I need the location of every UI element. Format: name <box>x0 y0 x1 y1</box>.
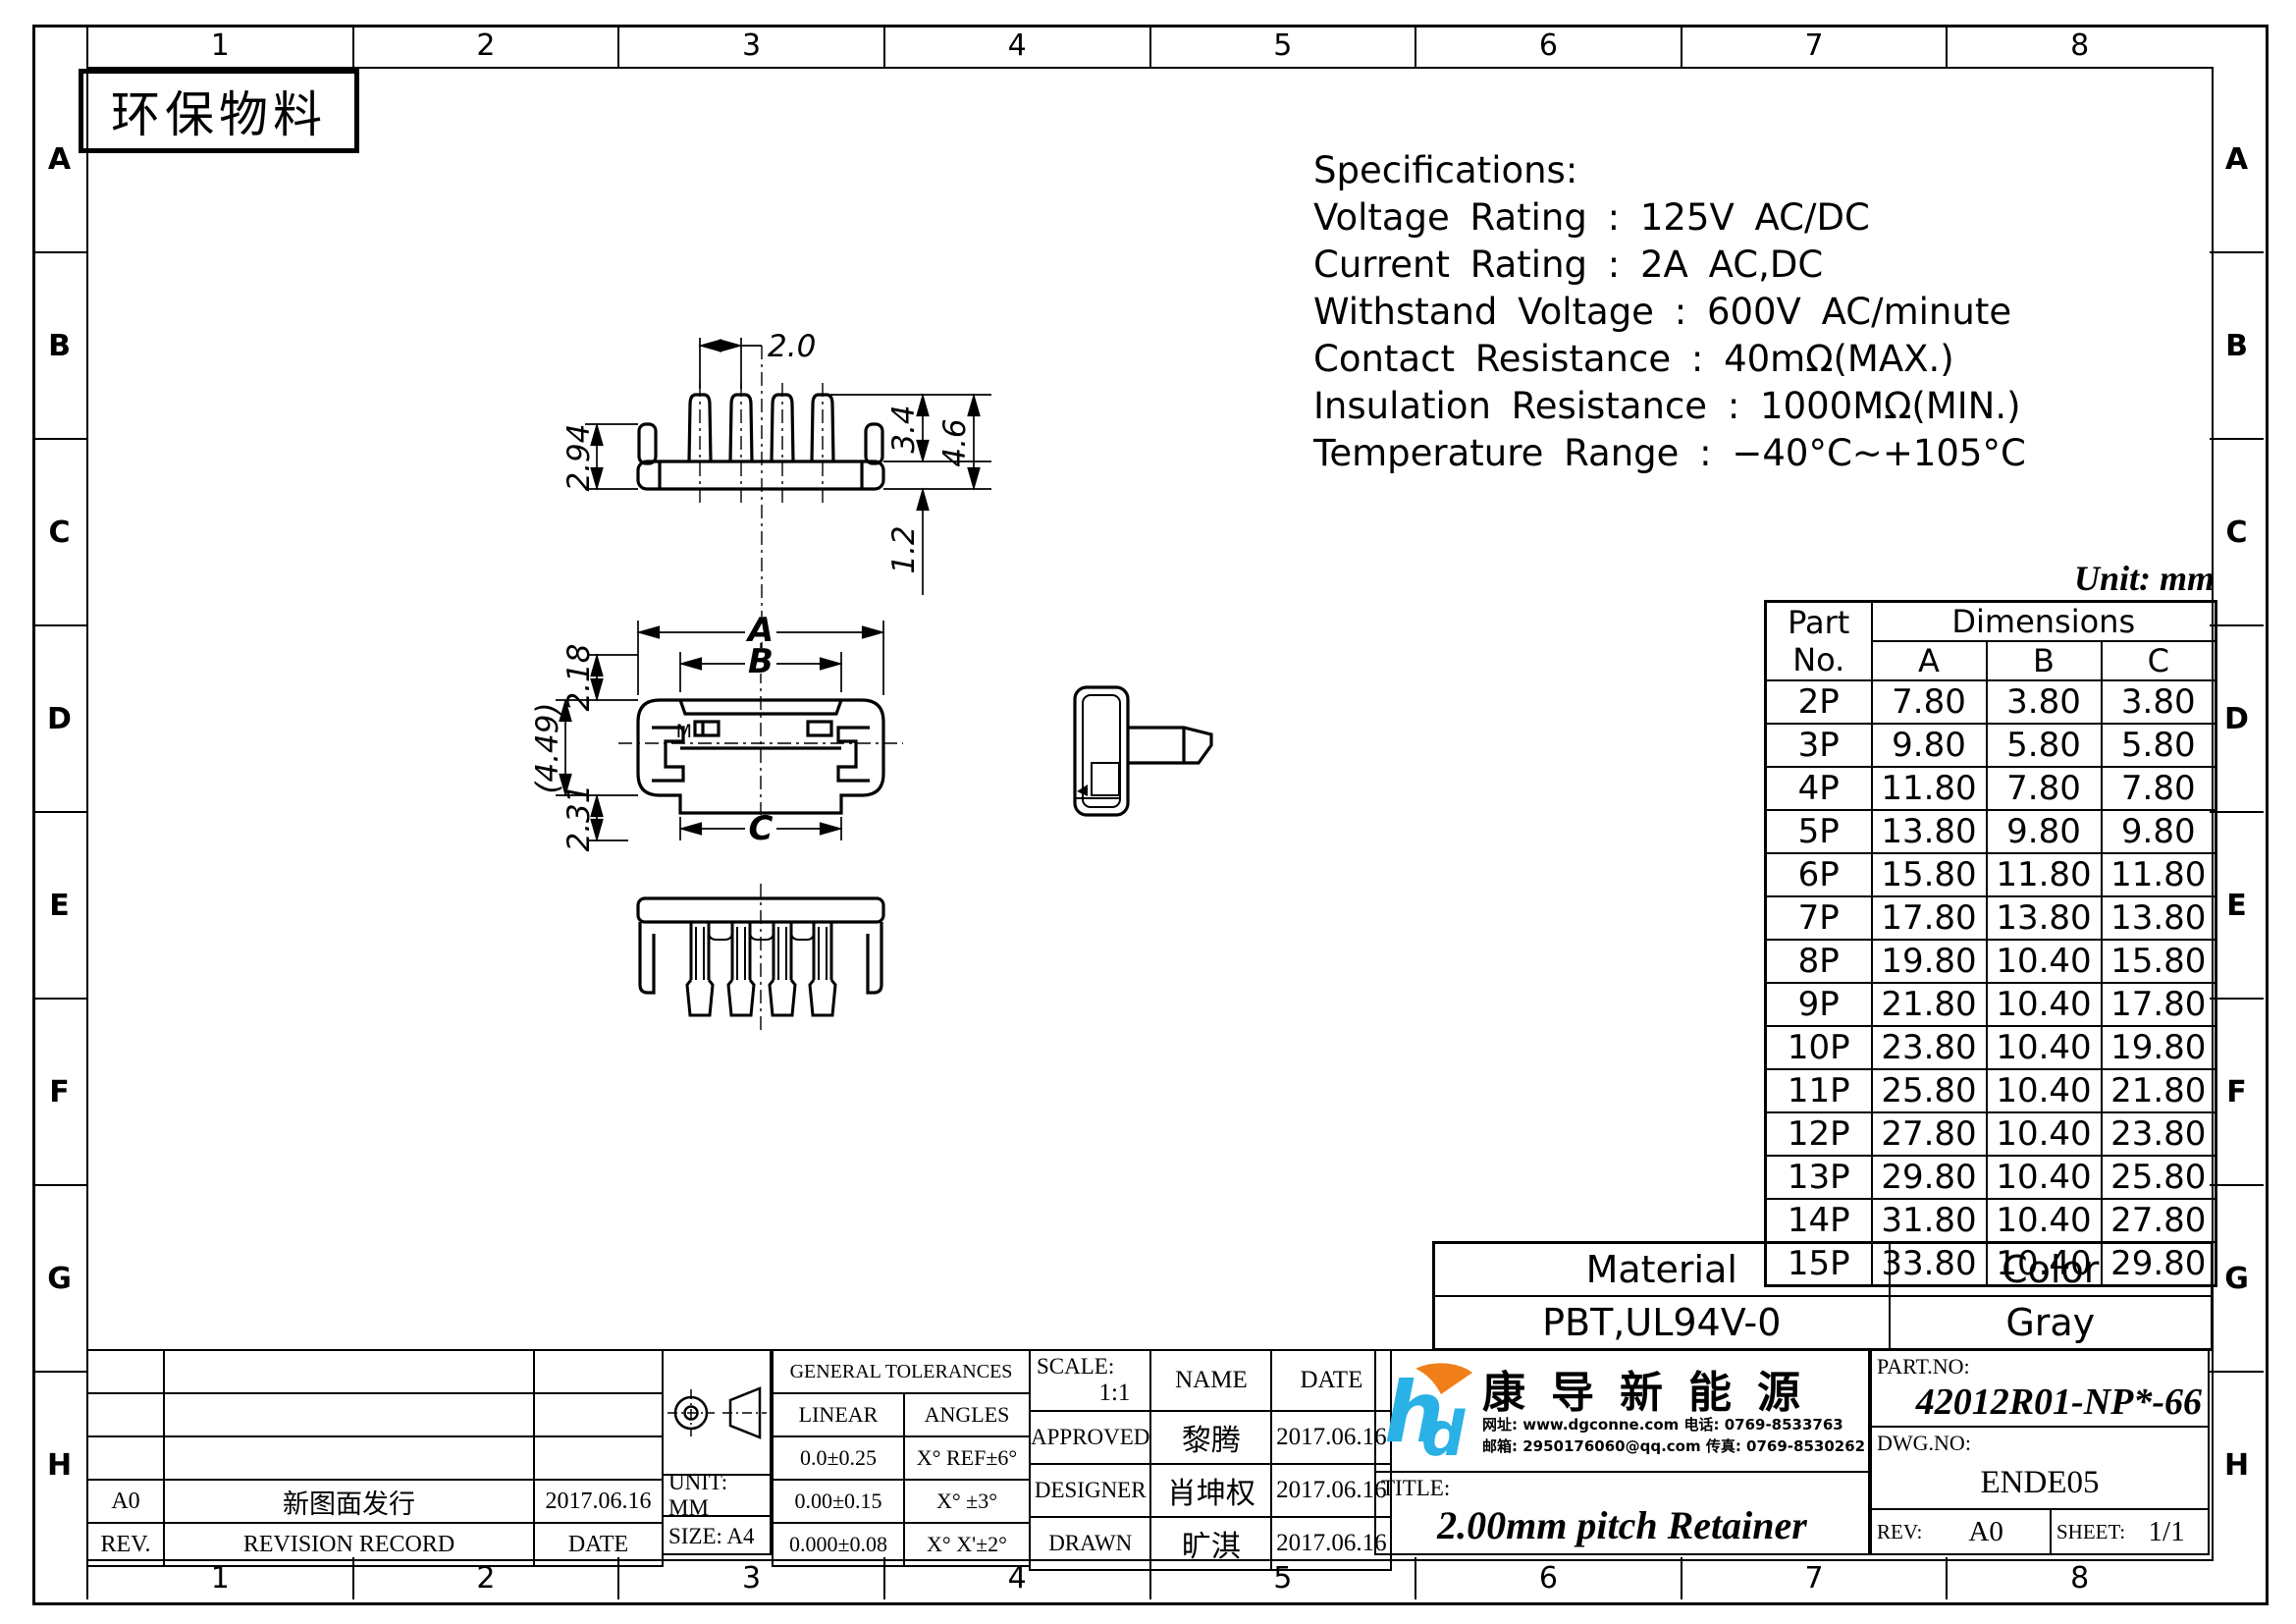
dim-12: 1.2 <box>886 525 922 573</box>
dim-a-cell: 13.80 <box>1872 810 1987 853</box>
dim-a-cell: 31.80 <box>1872 1199 1987 1242</box>
specification-line: Voltage Rating : 125V AC/DC <box>1313 194 2026 242</box>
dim-b-cell: 10.40 <box>1987 1026 2102 1069</box>
part-no-cell: 14P <box>1766 1199 1872 1242</box>
zone-row-label: E <box>2210 813 2264 1000</box>
zone-column-label: 2 <box>354 25 620 67</box>
zone-column-label: 7 <box>1682 1557 1949 1599</box>
dim-b-cell: 10.40 <box>1987 1199 2102 1242</box>
approval-table: SCALE: 1:1 NAME DATE APPROVED 黎腾 2017.06… <box>1029 1349 1392 1571</box>
zone-column-label: 6 <box>1416 1557 1682 1599</box>
zone-row-label: G <box>32 1186 86 1373</box>
title-area: TITLE: 2.00mm pitch Retainer <box>1376 1473 1868 1555</box>
approval-row: DESIGNER 肖坤权 2017.06.16 <box>1030 1464 1391 1517</box>
front-view: 2.0 2.94 3.4 4.6 1.2 <box>561 329 991 653</box>
scale-label: SCALE: <box>1037 1354 1114 1380</box>
dim-c-cell: 13.80 <box>2102 896 2216 940</box>
unit-note: Unit: mm <box>1920 558 2215 599</box>
name-header: NAME <box>1150 1350 1271 1411</box>
dimensions-table-row: 8P 19.80 10.40 15.80 <box>1766 940 2216 983</box>
dim-46: 4.6 <box>937 418 973 466</box>
revision-record: 新图面发行 <box>164 1480 534 1523</box>
scale-cell: SCALE: 1:1 <box>1030 1350 1150 1411</box>
bottom-view <box>638 884 883 1031</box>
dimensions-table-row: 11P 25.80 10.40 21.80 <box>1766 1069 2216 1112</box>
revision-rev: A0 <box>87 1480 164 1523</box>
dim-34: 3.4 <box>886 405 922 453</box>
revision-date: 2017.06.16 <box>534 1480 663 1523</box>
zone-column-label: 1 <box>88 25 354 67</box>
zone-row-label: D <box>32 626 86 813</box>
revision-row: A0 新图面发行 2017.06.16 <box>87 1480 663 1523</box>
dim-c-cell: 3.80 <box>2102 680 2216 724</box>
dim-c-cell: 9.80 <box>2102 810 2216 853</box>
dimensions-table-row: 3P 9.80 5.80 5.80 <box>1766 724 2216 767</box>
approval-role: DRAWN <box>1030 1517 1150 1570</box>
svg-text:d: d <box>1421 1398 1466 1465</box>
part-no-cell: 13P <box>1766 1156 1872 1199</box>
zone-row-label: F <box>2210 1000 2264 1186</box>
dimensions-table-row: 10P 23.80 10.40 19.80 <box>1766 1026 2216 1069</box>
angles-label: ANGLES <box>904 1393 1030 1436</box>
part-no-cell: 10P <box>1766 1026 1872 1069</box>
rev-label: REV: <box>1872 1520 1922 1544</box>
part-views-drawing: 2.0 2.94 3.4 4.6 1.2 <box>530 236 1276 1100</box>
dim-a-cell: 29.80 <box>1872 1156 1987 1199</box>
dim-b-cell: 3.80 <box>1987 680 2102 724</box>
zone-row-label: G <box>2210 1186 2264 1373</box>
dim-a-cell: 23.80 <box>1872 1026 1987 1069</box>
projection-symbol-icon <box>666 1371 768 1455</box>
revision-record-label: REVISION RECORD <box>164 1523 534 1566</box>
part-no-cell: 11P <box>1766 1069 1872 1112</box>
tolerance-angle: X° ±3° <box>904 1480 1030 1523</box>
zone-column-label: 7 <box>1682 25 1949 67</box>
dimensions-table-row: 6P 15.80 11.80 11.80 <box>1766 853 2216 896</box>
tolerance-row: 0.0±0.25 X° REF±6° <box>773 1436 1030 1480</box>
specification-line: Contact Resistance : 40mΩ(MAX.) <box>1313 336 2026 383</box>
dim-c-cell: 7.80 <box>2102 767 2216 810</box>
dim-b-cell: 10.40 <box>1987 1156 2102 1199</box>
zone-row-label: B <box>2210 253 2264 440</box>
zone-row-label: E <box>32 813 86 1000</box>
dim-b-cell: 10.40 <box>1987 1112 2102 1156</box>
part-no-section: PART.NO: 42012R01-NP*-66 <box>1872 1351 2208 1428</box>
unit-cell: UNIT: MM <box>664 1476 770 1517</box>
dim-a-cell: 7.80 <box>1872 680 1987 724</box>
dim-c: C <box>749 809 774 848</box>
engineering-drawing-sheet: 12345678 12345678 ABCDEFGH ABCDEFGH 环保物料… <box>0 0 2296 1624</box>
tolerances-table: GENERAL TOLERANCES LINEAR ANGLES 0.0±0.2… <box>772 1349 1031 1567</box>
dimensions-table-column-header: B <box>1987 641 2102 680</box>
zone-row-label: B <box>32 253 86 440</box>
sheet-value: 1/1 <box>2149 1516 2185 1548</box>
dim-b-cell: 10.40 <box>1987 1069 2102 1112</box>
tolerance-row: 0.000±0.08 X° X'±2° <box>773 1523 1030 1566</box>
dim-c-cell: 23.80 <box>2102 1112 2216 1156</box>
approval-name: 旷淇 <box>1150 1517 1271 1570</box>
revision-header-row: REV. REVISION RECORD DATE <box>87 1523 663 1566</box>
tolerance-row: 0.00±0.15 X° ±3° <box>773 1480 1030 1523</box>
dimensions-table-row: 5P 13.80 9.80 9.80 <box>1766 810 2216 853</box>
tolerance-linear: 0.0±0.25 <box>773 1436 904 1480</box>
dim-a-cell: 11.80 <box>1872 767 1987 810</box>
zone-row-label: C <box>2210 440 2264 626</box>
zone-column-label: 3 <box>619 25 885 67</box>
part-no-cell: 4P <box>1766 767 1872 810</box>
zone-row-label: D <box>2210 626 2264 813</box>
part-no-label: PART.NO: <box>1877 1354 1970 1380</box>
dim-b-cell: 9.80 <box>1987 810 2102 853</box>
top-view: A B C 2.18 (4.49) 2.31 M <box>530 611 903 852</box>
dim-b: B <box>748 642 774 681</box>
material-value: PBT,UL94V-0 <box>1434 1296 1890 1350</box>
approval-role: APPROVED <box>1030 1411 1150 1464</box>
dimensions-table-row: 9P 21.80 10.40 17.80 <box>1766 983 2216 1026</box>
dwg-no-label: DWG.NO: <box>1877 1431 1971 1456</box>
dim-b-cell: 10.40 <box>1987 940 2102 983</box>
dim-231: 2.31 <box>561 784 597 851</box>
dimensions-table-row: 14P 31.80 10.40 27.80 <box>1766 1199 2216 1242</box>
sheet-label: SHEET: <box>2052 1520 2125 1544</box>
specification-line: Current Rating : 2A AC,DC <box>1313 242 2026 289</box>
dim-218: 2.18 <box>561 643 597 711</box>
dimensions-table-part-header: Part No. <box>1766 602 1872 681</box>
dim-a-cell: 15.80 <box>1872 853 1987 896</box>
dim-c-cell: 21.80 <box>2102 1069 2216 1112</box>
tolerance-linear: 0.000±0.08 <box>773 1523 904 1566</box>
dim-a-cell: 25.80 <box>1872 1069 1987 1112</box>
tolerance-linear: 0.00±0.15 <box>773 1480 904 1523</box>
dimensions-table-column-header: A <box>1872 641 1987 680</box>
dim-b-cell: 10.40 <box>1987 983 2102 1026</box>
tolerance-angle: X° X'±2° <box>904 1523 1030 1566</box>
company-contact-line2: 邮箱: 2950176060@qq.com 传真: 0769-8530262 <box>1482 1435 1865 1457</box>
date-label: DATE <box>534 1523 663 1566</box>
specifications-title: Specifications: <box>1313 147 2026 194</box>
dim-449: (4.49) <box>530 702 565 793</box>
drawing-title: 2.00mm pitch Retainer <box>1376 1502 1868 1548</box>
company-name: 康导新能源 <box>1482 1357 1826 1420</box>
dim-c-cell: 5.80 <box>2102 724 2216 767</box>
sheet-cell: SHEET: 1/1 <box>2052 1510 2208 1553</box>
dimensions-table-row: 7P 17.80 13.80 13.80 <box>1766 896 2216 940</box>
dimensions-table-row: 2P 7.80 3.80 3.80 <box>1766 680 2216 724</box>
dim-b-cell: 13.80 <box>1987 896 2102 940</box>
dim-c-cell: 25.80 <box>2102 1156 2216 1199</box>
dwg-no-section: DWG.NO: ENDE05 <box>1872 1428 2208 1510</box>
dim-c-cell: 17.80 <box>2102 983 2216 1026</box>
marking-m-label: M <box>676 721 692 742</box>
zone-row-label: H <box>32 1373 86 1557</box>
eco-material-stamp: 环保物料 <box>79 69 359 153</box>
specification-line: Insulation Resistance : 1000MΩ(MIN.) <box>1313 383 2026 430</box>
zone-row-label: C <box>32 440 86 626</box>
dim-b-cell: 7.80 <box>1987 767 2102 810</box>
approval-name: 肖坤权 <box>1150 1464 1271 1517</box>
dim-a-cell: 21.80 <box>1872 983 1987 1026</box>
dimensions-table: Part No. Dimensions ABC 2P 7.80 3.80 3.8… <box>1764 600 2217 1287</box>
zone-row-label: F <box>32 1000 86 1186</box>
part-number-block: PART.NO: 42012R01-NP*-66 DWG.NO: ENDE05 … <box>1870 1349 2210 1555</box>
dim-c-cell: 27.80 <box>2102 1199 2216 1242</box>
zone-row-label: H <box>2210 1373 2264 1557</box>
rev-value: A0 <box>1968 1516 2002 1548</box>
part-no-cell: 9P <box>1766 983 1872 1026</box>
rev-sheet-row: REV: A0 SHEET: 1/1 <box>1872 1510 2208 1553</box>
company-contact-line1: 网址: www.dgconne.com 电话: 0769-8533763 <box>1482 1414 1865 1435</box>
specification-line: Temperature Range : −40°C~+105°C <box>1313 430 2026 477</box>
specifications-block: Specifications: Voltage Rating : 125V AC… <box>1313 147 2026 477</box>
rev-label: REV. <box>87 1523 164 1566</box>
dimensions-table-row: 12P 27.80 10.40 23.80 <box>1766 1112 2216 1156</box>
approval-role: DESIGNER <box>1030 1464 1150 1517</box>
linear-label: LINEAR <box>773 1393 904 1436</box>
material-table: Material Color PBT,UL94V-0 Gray <box>1432 1241 2214 1351</box>
zone-band-top: 12345678 <box>86 25 2212 67</box>
dimensions-table-column-header: C <box>2102 641 2216 680</box>
rev-cell: REV: A0 <box>1872 1510 2052 1553</box>
dim-a-cell: 27.80 <box>1872 1112 1987 1156</box>
dimensions-table-row: 4P 11.80 7.80 7.80 <box>1766 767 2216 810</box>
dim-a-cell: 17.80 <box>1872 896 1987 940</box>
company-logo-area: h d 康导新能源 网址: www.dgconne.com 电话: 0769-8… <box>1376 1351 1868 1473</box>
zone-column-label: 4 <box>885 25 1151 67</box>
dim-c-cell: 19.80 <box>2102 1026 2216 1069</box>
part-no-cell: 6P <box>1766 853 1872 896</box>
part-no-cell: 3P <box>1766 724 1872 767</box>
material-header: Material <box>1434 1243 1890 1297</box>
revision-table: A0 新图面发行 2017.06.16 REV. REVISION RECORD… <box>86 1349 664 1567</box>
zone-column-label: 6 <box>1416 25 1682 67</box>
part-no-value: 42012R01-NP*-66 <box>1872 1380 2202 1424</box>
unit-size-column: UNIT: MM SIZE: A4 <box>662 1349 772 1555</box>
part-no-cell: 12P <box>1766 1112 1872 1156</box>
scale-value: 1:1 <box>1098 1380 1144 1407</box>
size-cell: SIZE: A4 <box>664 1517 770 1556</box>
dim-a-cell: 9.80 <box>1872 724 1987 767</box>
zone-band-right: ABCDEFGH <box>2210 67 2264 1557</box>
company-contact: 网址: www.dgconne.com 电话: 0769-8533763 邮箱:… <box>1482 1414 1865 1457</box>
company-logo-icon: h d <box>1384 1357 1477 1465</box>
third-angle-projection-symbol <box>664 1351 770 1476</box>
part-no-cell: 2P <box>1766 680 1872 724</box>
tolerances-title: GENERAL TOLERANCES <box>773 1350 1030 1393</box>
approval-row: DRAWN 旷淇 2017.06.16 <box>1030 1517 1391 1570</box>
dim-c-cell: 15.80 <box>2102 940 2216 983</box>
zone-row-label: A <box>2210 67 2264 253</box>
part-no-cell: 5P <box>1766 810 1872 853</box>
dim-a-cell: 19.80 <box>1872 940 1987 983</box>
color-value: Gray <box>1890 1296 2213 1350</box>
approval-row: APPROVED 黎腾 2017.06.16 <box>1030 1411 1391 1464</box>
part-no-cell: 8P <box>1766 940 1872 983</box>
approval-name: 黎腾 <box>1150 1411 1271 1464</box>
color-header: Color <box>1890 1243 2213 1297</box>
zone-column-label: 8 <box>1948 25 2212 67</box>
dim-c-cell: 11.80 <box>2102 853 2216 896</box>
dim-pitch: 2.0 <box>768 329 816 364</box>
dimensions-table-dims-header: Dimensions <box>1872 602 2216 642</box>
specification-line: Withstand Voltage : 600V AC/minute <box>1313 289 2026 336</box>
company-title-block: h d 康导新能源 网址: www.dgconne.com 电话: 0769-8… <box>1374 1349 1870 1555</box>
side-view <box>1075 687 1211 815</box>
dimensions-table-row: 13P 29.80 10.40 25.80 <box>1766 1156 2216 1199</box>
tolerance-angle: X° REF±6° <box>904 1436 1030 1480</box>
title-label: TITLE: <box>1381 1476 1450 1501</box>
dwg-no-value: ENDE05 <box>1872 1465 2208 1501</box>
dim-294: 2.94 <box>561 423 597 491</box>
zone-column-label: 8 <box>1948 1557 2212 1599</box>
zone-column-label: 5 <box>1151 25 1417 67</box>
part-no-cell: 7P <box>1766 896 1872 940</box>
zone-band-left: ABCDEFGH <box>32 67 86 1557</box>
dim-b-cell: 11.80 <box>1987 853 2102 896</box>
dim-b-cell: 5.80 <box>1987 724 2102 767</box>
